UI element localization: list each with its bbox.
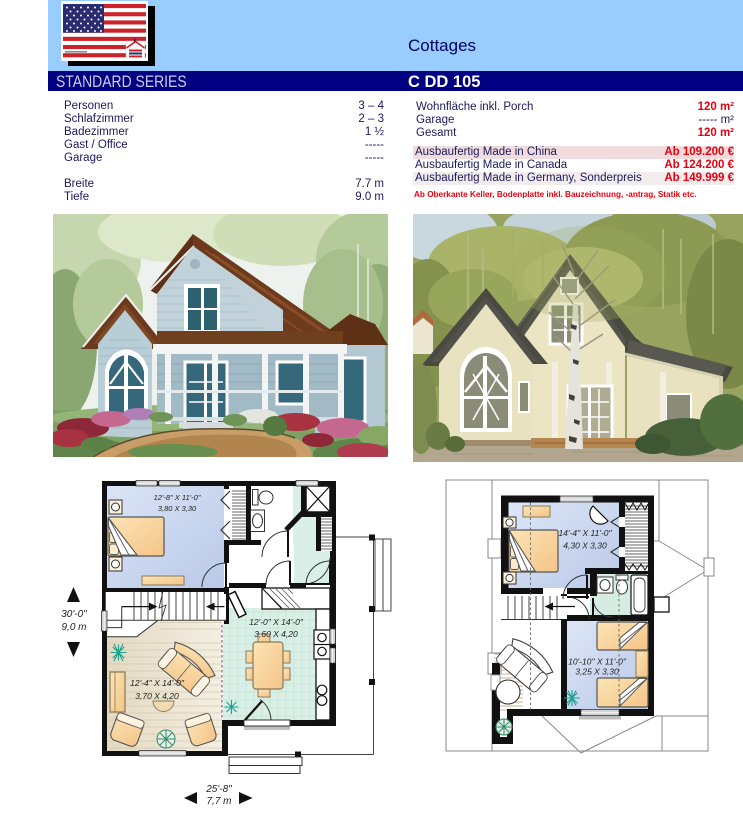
svg-text:12'-0" X 14'-0": 12'-0" X 14'-0" (249, 617, 304, 627)
svg-text:30'-0": 30'-0" (61, 609, 87, 620)
svg-text:3,60 X 4,20: 3,60 X 4,20 (254, 629, 298, 639)
svg-text:12'-4" X 14'-0": 12'-4" X 14'-0" (130, 678, 185, 688)
svg-text:12'-8" X 11'-0": 12'-8" X 11'-0" (154, 493, 201, 502)
svg-text:25'-8": 25'-8" (205, 784, 232, 795)
svg-text:3,70 X 4,20: 3,70 X 4,20 (135, 691, 179, 701)
svg-text:14'-4" X 11'-0": 14'-4" X 11'-0" (558, 528, 612, 538)
svg-text:9,0 m: 9,0 m (61, 622, 86, 633)
svg-text:4,30 X 3,30: 4,30 X 3,30 (563, 541, 607, 551)
svg-text:3,80 X 3,30: 3,80 X 3,30 (158, 504, 197, 513)
svg-text:3,25 X 3,30: 3,25 X 3,30 (575, 667, 619, 677)
svg-text:10'-10" X 11'-0": 10'-10" X 11'-0" (568, 657, 627, 667)
svg-text:7,7 m: 7,7 m (206, 796, 231, 807)
